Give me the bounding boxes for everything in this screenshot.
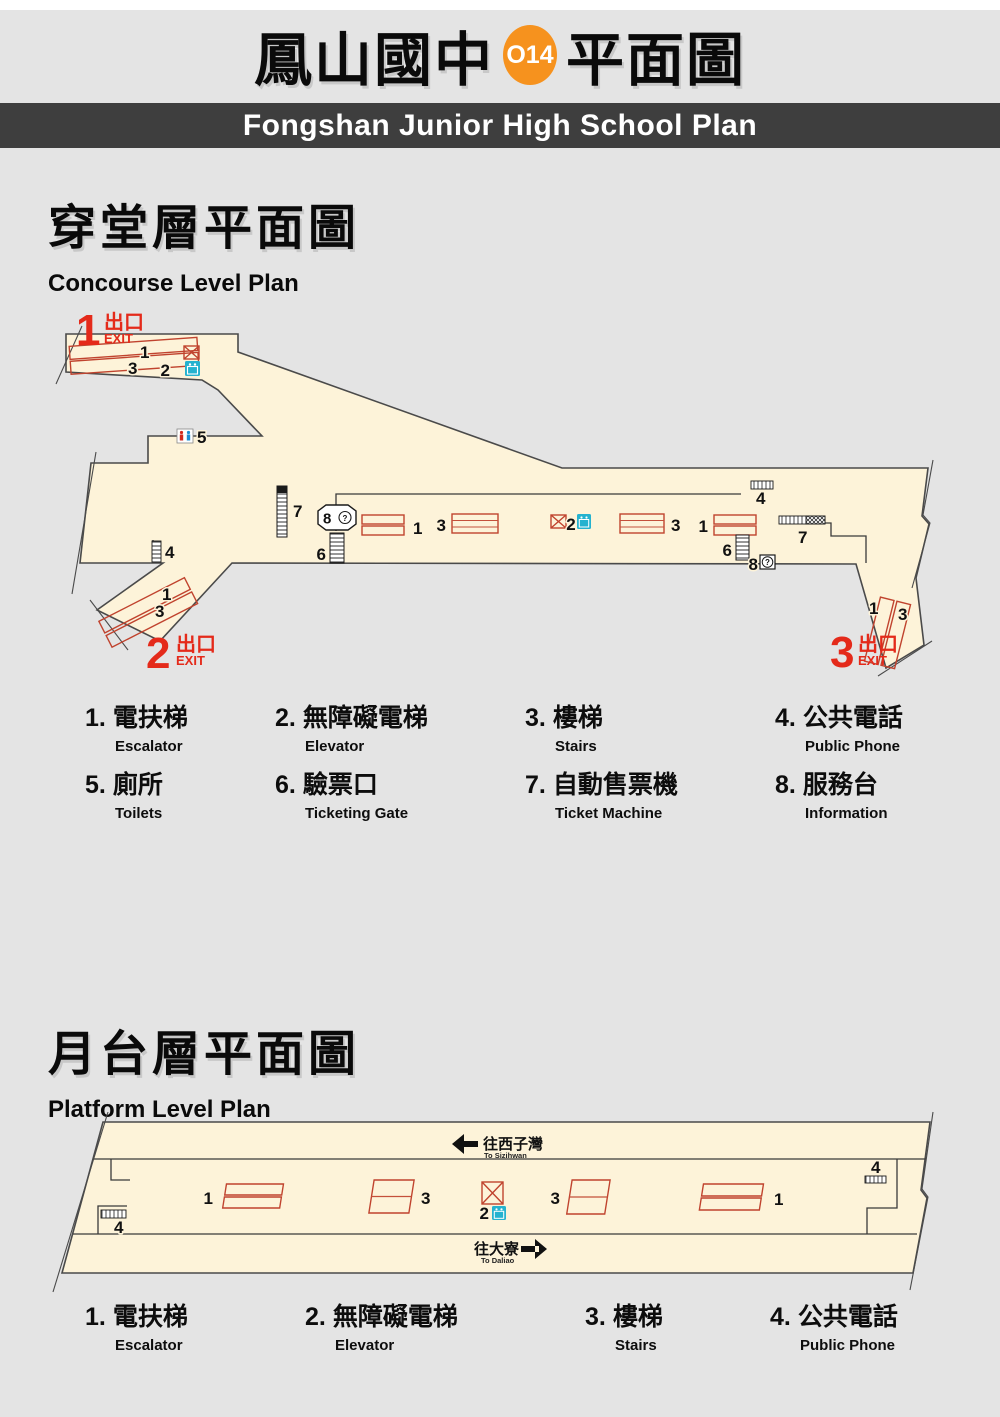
legend-en: Escalator — [115, 1337, 188, 1354]
stairs-right-label: 3 — [671, 516, 680, 535]
legend-cjk: 樓梯 — [613, 1303, 663, 1331]
information-desk-right-label: 8 — [749, 555, 758, 574]
exit1-accessible-elevator-icon — [185, 361, 200, 376]
legend-cjk: 廁所 — [113, 771, 163, 799]
toilets-label: 5 — [197, 428, 206, 447]
english-banner-text: Fongshan Junior High School Plan — [243, 109, 757, 143]
exit3-exit-word: EXIT — [858, 653, 887, 668]
center-accessible-elevator-icon — [577, 514, 591, 529]
station-code-badge: O14 — [503, 25, 557, 85]
legend-cjk: 樓梯 — [553, 704, 603, 732]
legend-en: Toilets — [115, 805, 163, 822]
public-phone-top-icon — [751, 481, 773, 489]
platform-phone-right-icon — [865, 1176, 886, 1183]
legend-en: Stairs — [555, 738, 603, 755]
legend-en: Elevator — [305, 738, 428, 755]
concourse-title: 穿堂層平面圖 — [48, 188, 360, 258]
exit1-number: 1 — [76, 306, 100, 355]
legend-num: 3. — [525, 704, 546, 732]
legend-num: 4. — [770, 1303, 791, 1331]
escalator-left-label: 1 — [413, 519, 422, 538]
public-phone-top-label: 4 — [756, 489, 766, 508]
concourse-plan-svg: 1 3 2 5 7 — [0, 300, 1000, 700]
legend-num: 6. — [275, 771, 296, 799]
english-banner: Fongshan Junior High School Plan — [0, 103, 1000, 148]
exit2-exit-word: EXIT — [176, 653, 205, 668]
legend-item-public-phone: 4. 公共電話 Public Phone — [775, 698, 903, 755]
page-title: 鳳山國中 O14 平面圖 — [0, 12, 1000, 98]
platform-stairs-left-label: 3 — [421, 1189, 430, 1208]
legend-item-ticket-machine: 7. 自動售票機 Ticket Machine — [525, 765, 678, 822]
public-phone-left-label: 4 — [165, 543, 175, 562]
platform-phone-left-label: 4 — [114, 1218, 124, 1237]
legend-en: Escalator — [115, 738, 188, 755]
legend-item-toilets: 5. 廁所 Toilets — [85, 765, 163, 822]
station-plan-poster: 鳳山國中 O14 平面圖 Fongshan Junior High School… — [0, 0, 1000, 1417]
legend-item-stairs: 3. 樓梯 Stairs — [525, 698, 603, 755]
ticket-machine-right-label: 7 — [798, 528, 807, 547]
exit1-exit-word: EXIT — [104, 331, 133, 346]
ticketing-gate-right-label: 6 — [723, 541, 732, 560]
platform-escalator-right-label: 1 — [774, 1190, 783, 1209]
concourse-section-head: 穿堂層平面圖 Concourse Level Plan — [48, 188, 360, 298]
ticket-machine-left-icon — [277, 486, 287, 537]
legend-en: Elevator — [335, 1337, 458, 1354]
exit3-escalator-label: 1 — [869, 599, 878, 618]
information-desk-left-label: 8 — [323, 511, 331, 528]
legend-en: Stairs — [615, 1337, 663, 1354]
ticketing-gate-right-icon — [736, 535, 749, 560]
legend-num: 1. — [85, 1303, 106, 1331]
exit1-elevator-label: 2 — [161, 361, 170, 380]
legend-num: 3. — [585, 1303, 606, 1331]
legend-num: 5. — [85, 771, 106, 799]
escalator-right-label: 1 — [699, 517, 708, 536]
legend-en: Public Phone — [805, 738, 903, 755]
top-strip — [0, 0, 1000, 10]
legend-en: Information — [805, 805, 888, 822]
exit3-stairs-label: 3 — [898, 605, 907, 624]
exit2-stairs-label: 3 — [155, 602, 164, 621]
platform-legend-stairs: 3. 樓梯 Stairs — [585, 1297, 663, 1354]
exit1-escalator-label: 1 — [140, 343, 149, 362]
legend-cjk: 驗票口 — [303, 771, 378, 799]
legend-cjk: 公共電話 — [798, 1303, 898, 1331]
legend-item-escalator: 1. 電扶梯 Escalator — [85, 698, 188, 755]
platform-legend-public-phone: 4. 公共電話 Public Phone — [770, 1297, 898, 1354]
platform-stairs-right-label: 3 — [551, 1189, 560, 1208]
station-name-cjk: 鳳山國中 — [254, 13, 494, 97]
legend-cjk: 服務台 — [803, 771, 878, 799]
stairs-left-label: 3 — [437, 516, 446, 535]
legend-cjk: 電扶梯 — [113, 1303, 188, 1331]
concourse-floor-outline — [66, 334, 929, 668]
legend-en: Public Phone — [800, 1337, 898, 1354]
legend-cjk: 無障礙電梯 — [303, 704, 428, 732]
ticket-machine-left-label: 7 — [293, 502, 302, 521]
legend-num: 8. — [775, 771, 796, 799]
center-elevator-label: 2 — [566, 515, 575, 534]
ticketing-gate-left-icon — [330, 533, 344, 563]
legend-cjk: 無障礙電梯 — [333, 1303, 458, 1331]
legend-en: Ticket Machine — [555, 805, 678, 822]
legend-cjk: 電扶梯 — [113, 704, 188, 732]
platform-title: 月台層平面圖 — [48, 1014, 360, 1084]
plan-word-cjk: 平面圖 — [566, 13, 746, 97]
direction-sizihwan-en: To Sizihwan — [484, 1151, 527, 1160]
exit2-badge: 2 出口 EXIT — [146, 629, 216, 678]
legend-num: 7. — [525, 771, 546, 799]
exit1-stairs-label: 3 — [128, 359, 137, 378]
platform-elevator-label: 2 — [480, 1204, 489, 1223]
legend-item-information: 8. 服務台 Information — [775, 765, 888, 822]
legend-num: 1. — [85, 704, 106, 732]
ticket-machine-right-icon — [779, 516, 825, 524]
legend-num: 4. — [775, 704, 796, 732]
legend-item-ticketing-gate: 6. 驗票口 Ticketing Gate — [275, 765, 408, 822]
legend-item-elevator: 2. 無障礙電梯 Elevator — [275, 698, 428, 755]
exit3-number: 3 — [830, 628, 854, 677]
legend-cjk: 自動售票機 — [553, 771, 678, 799]
information-question-right: ? — [765, 558, 770, 567]
exit2-number: 2 — [146, 629, 170, 678]
platform-legend-elevator: 2. 無障礙電梯 Elevator — [305, 1297, 458, 1354]
platform-legend-escalator: 1. 電扶梯 Escalator — [85, 1297, 188, 1354]
information-question-left: ? — [343, 514, 348, 523]
direction-daliao-en: To Daliao — [481, 1256, 515, 1265]
platform-phone-left-icon — [101, 1210, 126, 1218]
ticketing-gate-left-label: 6 — [317, 545, 326, 564]
platform-accessible-elevator-icon — [492, 1206, 506, 1220]
public-phone-left-icon — [152, 541, 161, 562]
legend-cjk: 公共電話 — [803, 704, 903, 732]
legend-num: 2. — [305, 1303, 326, 1331]
toilets-icon — [177, 429, 193, 443]
platform-phone-right-label: 4 — [871, 1158, 881, 1177]
legend-en: Ticketing Gate — [305, 805, 408, 822]
legend-num: 2. — [275, 704, 296, 732]
platform-plan-svg: 往西子灣 To Sizihwan 往大寮 To Daliao — [0, 1100, 1000, 1310]
concourse-subtitle: Concourse Level Plan — [48, 270, 360, 298]
platform-escalator-left-label: 1 — [204, 1189, 213, 1208]
